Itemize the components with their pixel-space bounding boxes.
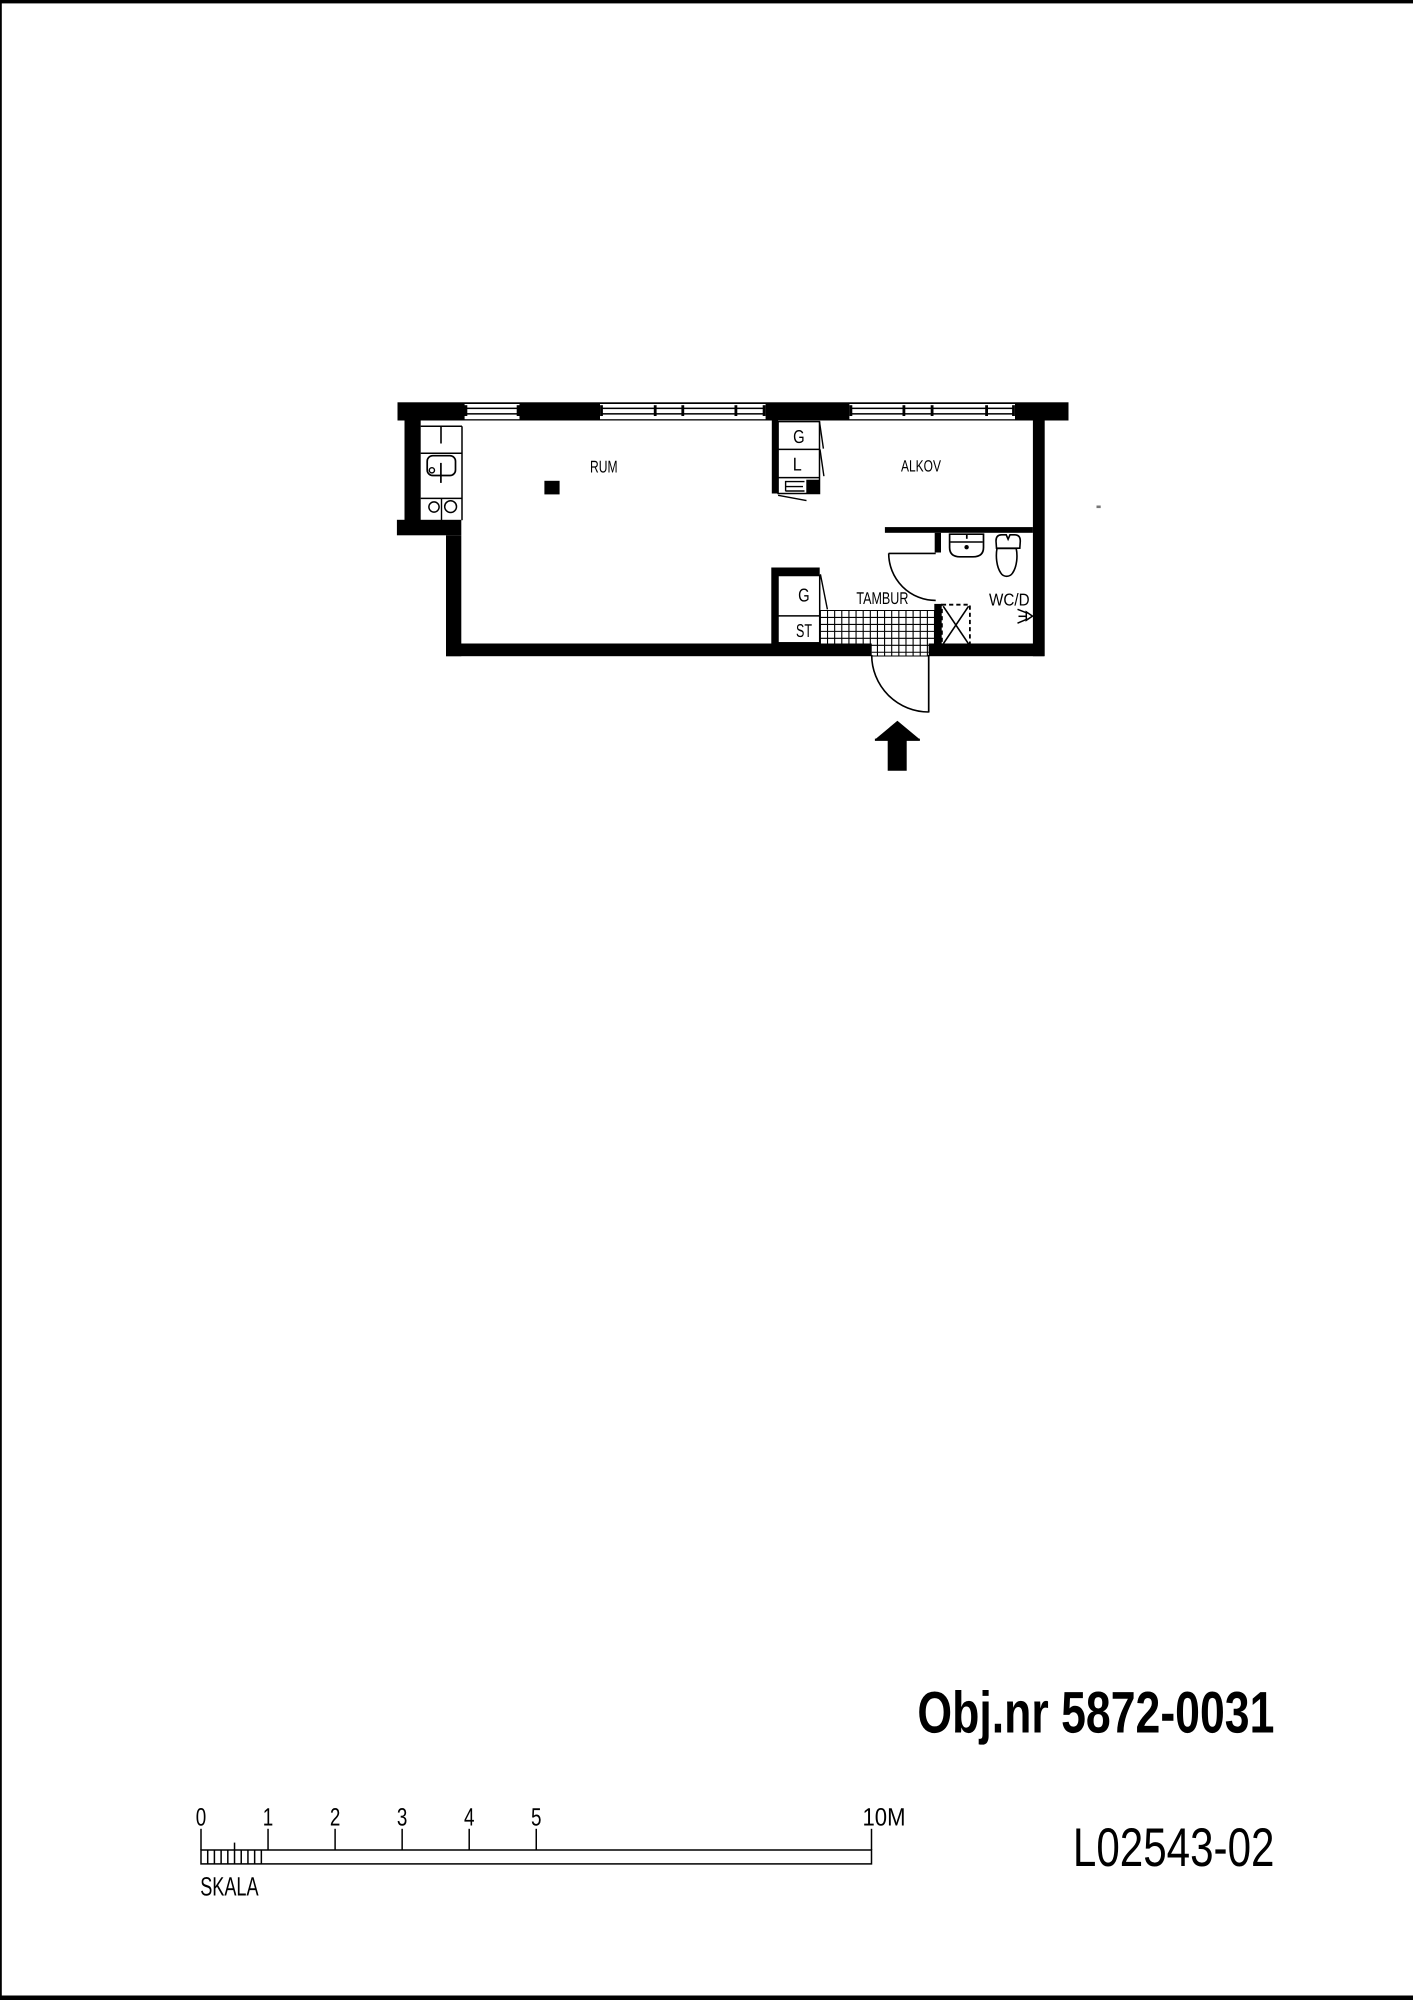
svg-text:G: G [798,584,810,605]
svg-text:4: 4 [464,1804,475,1832]
svg-text:RUM: RUM [590,458,618,477]
svg-text:0: 0 [196,1804,207,1832]
svg-text:ST: ST [796,620,812,641]
svg-text:5: 5 [531,1804,542,1832]
svg-text:10M: 10M [863,1804,906,1832]
svg-text:TAMBUR: TAMBUR [856,589,908,608]
svg-text:3: 3 [397,1804,408,1832]
svg-text:Obj.nr 5872-0031: Obj.nr 5872-0031 [917,1681,1274,1746]
svg-text:SKALA: SKALA [200,1872,259,1902]
svg-text:L: L [793,454,802,475]
svg-text:G: G [793,426,805,447]
svg-text:1: 1 [263,1804,274,1832]
svg-text:L02543-02: L02543-02 [1073,1817,1275,1878]
svg-text:WC/D: WC/D [989,590,1030,610]
svg-text:2: 2 [330,1804,341,1832]
svg-text:ALKOV: ALKOV [901,457,941,475]
